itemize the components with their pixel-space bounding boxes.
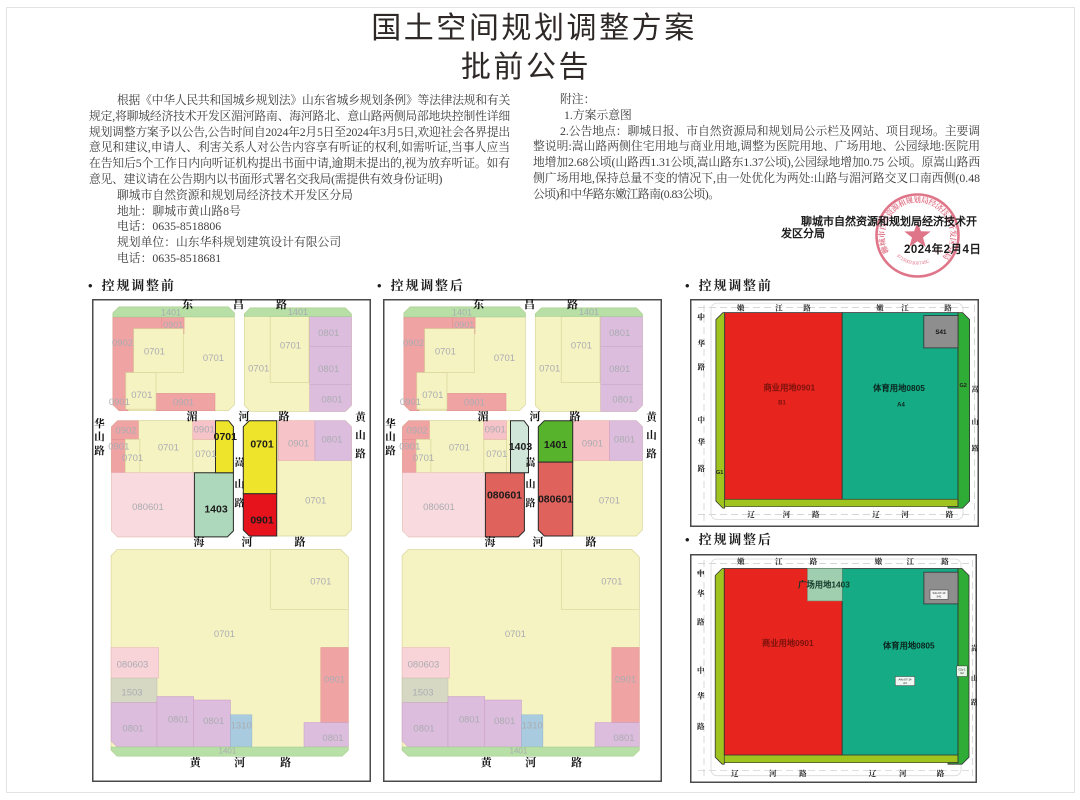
svg-text:0801: 0801 bbox=[614, 434, 635, 445]
svg-text:山: 山 bbox=[235, 478, 245, 491]
svg-text:路: 路 bbox=[972, 443, 979, 452]
svg-text:0701: 0701 bbox=[250, 438, 274, 450]
svg-text:山: 山 bbox=[355, 429, 366, 442]
svg-text:路: 路 bbox=[941, 556, 949, 566]
svg-text:0901: 0901 bbox=[615, 675, 636, 686]
svg-text:B1: B1 bbox=[778, 400, 786, 406]
svg-text:0801: 0801 bbox=[122, 724, 143, 735]
svg-text:中: 中 bbox=[697, 415, 705, 425]
svg-text:0901: 0901 bbox=[582, 438, 603, 449]
svg-text:嫩: 嫩 bbox=[875, 556, 883, 566]
svg-text:路: 路 bbox=[697, 463, 705, 473]
svg-text:海: 海 bbox=[485, 535, 496, 549]
svg-text:中: 中 bbox=[697, 568, 705, 578]
svg-text:080603: 080603 bbox=[408, 659, 440, 670]
svg-text:湄: 湄 bbox=[187, 410, 198, 423]
svg-text:路: 路 bbox=[526, 497, 536, 510]
svg-text:0701: 0701 bbox=[203, 353, 224, 364]
svg-text:山: 山 bbox=[94, 430, 105, 443]
svg-text:路: 路 bbox=[385, 444, 396, 457]
svg-text:辽: 辽 bbox=[747, 510, 755, 519]
svg-text:路: 路 bbox=[276, 299, 287, 311]
svg-text:0701: 0701 bbox=[305, 495, 326, 506]
svg-text:江: 江 bbox=[901, 303, 909, 313]
svg-text:0701: 0701 bbox=[599, 495, 620, 506]
svg-text:0701: 0701 bbox=[413, 453, 434, 464]
svg-text:河: 河 bbox=[783, 509, 791, 519]
svg-text:0701: 0701 bbox=[195, 449, 216, 460]
svg-text:0801: 0801 bbox=[321, 434, 342, 445]
svg-text:G2c-1: G2c-1 bbox=[958, 667, 966, 671]
svg-text:0701: 0701 bbox=[131, 390, 152, 401]
svg-text:华: 华 bbox=[697, 338, 705, 348]
svg-text:0701: 0701 bbox=[571, 341, 592, 352]
svg-text:嫩: 嫩 bbox=[876, 303, 884, 313]
svg-text:A4: A4 bbox=[903, 681, 907, 685]
svg-text:0701: 0701 bbox=[280, 341, 301, 352]
svg-text:0701: 0701 bbox=[494, 353, 515, 364]
svg-text:路: 路 bbox=[810, 556, 818, 566]
svg-text:江: 江 bbox=[775, 556, 783, 566]
svg-text:0902: 0902 bbox=[112, 338, 133, 349]
svg-text:0701: 0701 bbox=[435, 347, 456, 358]
svg-text:路: 路 bbox=[646, 447, 657, 460]
svg-text:河: 河 bbox=[901, 509, 909, 519]
svg-text:中: 中 bbox=[697, 665, 705, 675]
svg-text:0701: 0701 bbox=[248, 364, 269, 375]
svg-text:路: 路 bbox=[567, 299, 578, 311]
svg-text:海: 海 bbox=[194, 535, 205, 549]
svg-text:江: 江 bbox=[907, 556, 915, 566]
svg-text:1401: 1401 bbox=[452, 308, 472, 318]
svg-text:路: 路 bbox=[937, 768, 945, 778]
svg-text:中: 中 bbox=[697, 312, 705, 322]
svg-text:路: 路 bbox=[812, 509, 820, 519]
svg-text:路: 路 bbox=[697, 721, 705, 731]
svg-text:0901: 0901 bbox=[194, 424, 215, 435]
svg-text:080601: 080601 bbox=[423, 502, 455, 513]
svg-text:0701: 0701 bbox=[486, 449, 507, 460]
svg-text:华: 华 bbox=[697, 588, 705, 598]
svg-text:0801: 0801 bbox=[413, 724, 434, 735]
svg-text:体育用地0805: 体育用地0805 bbox=[873, 383, 925, 393]
svg-text:0901: 0901 bbox=[173, 397, 194, 408]
svg-text:华: 华 bbox=[385, 417, 396, 430]
svg-text:河: 河 bbox=[242, 536, 253, 549]
svg-text:河: 河 bbox=[525, 756, 536, 769]
svg-text:0701: 0701 bbox=[144, 347, 165, 358]
svg-text:0701: 0701 bbox=[505, 629, 526, 640]
svg-text:0701: 0701 bbox=[601, 577, 622, 588]
svg-text:辽: 辽 bbox=[869, 769, 877, 778]
svg-text:S41: S41 bbox=[937, 595, 942, 599]
svg-text:0801: 0801 bbox=[459, 714, 480, 725]
svg-text:G2: G2 bbox=[960, 671, 964, 675]
svg-text:华: 华 bbox=[697, 691, 705, 701]
svg-text:1401: 1401 bbox=[219, 747, 237, 756]
svg-text:0901: 0901 bbox=[454, 320, 474, 330]
svg-text:080601: 080601 bbox=[538, 494, 573, 506]
svg-text:嵩: 嵩 bbox=[235, 456, 245, 469]
svg-text:0901: 0901 bbox=[109, 397, 130, 408]
svg-text:路: 路 bbox=[279, 409, 290, 423]
svg-text:1403: 1403 bbox=[509, 441, 533, 453]
svg-text:嵩: 嵩 bbox=[971, 643, 977, 652]
svg-text:商业用地0901: 商业用地0901 bbox=[762, 638, 814, 648]
svg-text:0902: 0902 bbox=[403, 338, 424, 349]
svg-text:东: 东 bbox=[182, 299, 194, 311]
svg-text:0901: 0901 bbox=[399, 442, 420, 453]
svg-text:路: 路 bbox=[971, 698, 977, 707]
svg-text:080601: 080601 bbox=[132, 502, 164, 513]
svg-text:路: 路 bbox=[944, 303, 952, 313]
svg-text:山: 山 bbox=[526, 478, 536, 491]
svg-text:辽: 辽 bbox=[731, 769, 739, 778]
svg-text:黄: 黄 bbox=[646, 411, 658, 424]
svg-text:路: 路 bbox=[803, 303, 811, 313]
svg-text:1401: 1401 bbox=[544, 439, 568, 451]
svg-text:0701: 0701 bbox=[214, 431, 238, 443]
svg-text:0901: 0901 bbox=[400, 397, 421, 408]
svg-text:路: 路 bbox=[570, 409, 581, 423]
svg-text:东: 东 bbox=[473, 299, 485, 311]
svg-text:河: 河 bbox=[769, 768, 777, 778]
svg-text:0801: 0801 bbox=[322, 733, 343, 744]
svg-text:华: 华 bbox=[94, 417, 105, 430]
svg-text:0801: 0801 bbox=[203, 716, 224, 727]
svg-text:路: 路 bbox=[355, 447, 366, 460]
svg-text:路: 路 bbox=[697, 617, 705, 627]
svg-text:山: 山 bbox=[971, 674, 977, 683]
svg-text:山: 山 bbox=[385, 430, 396, 443]
svg-text:0701: 0701 bbox=[122, 453, 143, 464]
svg-text:路: 路 bbox=[946, 509, 954, 519]
svg-text:1403: 1403 bbox=[204, 503, 228, 515]
svg-text:1503: 1503 bbox=[121, 687, 142, 698]
svg-text:0901: 0901 bbox=[250, 515, 274, 527]
svg-text:嵩: 嵩 bbox=[972, 385, 979, 394]
svg-text:河: 河 bbox=[239, 410, 250, 423]
svg-text:G2: G2 bbox=[960, 383, 967, 389]
svg-text:路: 路 bbox=[586, 535, 597, 549]
svg-text:S41: S41 bbox=[935, 329, 947, 336]
svg-text:0801: 0801 bbox=[168, 714, 189, 725]
svg-text:0901: 0901 bbox=[485, 424, 506, 435]
svg-text:体育用地0805: 体育用地0805 bbox=[883, 640, 935, 650]
svg-text:0801: 0801 bbox=[494, 716, 515, 727]
svg-text:湄: 湄 bbox=[478, 410, 489, 423]
svg-text:昌: 昌 bbox=[233, 299, 244, 311]
svg-text:河: 河 bbox=[530, 410, 541, 423]
svg-text:嫩: 嫩 bbox=[737, 556, 745, 566]
svg-text:0701: 0701 bbox=[422, 390, 443, 401]
svg-text:0901: 0901 bbox=[163, 320, 183, 330]
svg-text:0801: 0801 bbox=[613, 733, 634, 744]
svg-text:河: 河 bbox=[234, 756, 245, 769]
svg-text:河: 河 bbox=[533, 536, 544, 549]
svg-text:河: 河 bbox=[899, 768, 907, 778]
svg-text:路: 路 bbox=[94, 444, 105, 457]
svg-text:嵩: 嵩 bbox=[526, 456, 536, 469]
svg-text:路: 路 bbox=[235, 497, 245, 510]
svg-text:0801: 0801 bbox=[609, 328, 630, 339]
svg-text:0801: 0801 bbox=[609, 364, 630, 375]
svg-text:0701: 0701 bbox=[214, 629, 235, 640]
svg-text:路: 路 bbox=[295, 535, 306, 549]
svg-text:1401: 1401 bbox=[510, 747, 528, 756]
svg-text:嫩: 嫩 bbox=[737, 303, 745, 313]
svg-text:0901: 0901 bbox=[108, 442, 129, 453]
svg-text:0701: 0701 bbox=[449, 443, 470, 454]
svg-text:华: 华 bbox=[697, 437, 705, 447]
svg-text:0801: 0801 bbox=[612, 394, 633, 405]
svg-text:0902: 0902 bbox=[115, 425, 136, 436]
svg-text:1503: 1503 bbox=[412, 687, 433, 698]
svg-text:0701: 0701 bbox=[158, 443, 179, 454]
svg-text:0801: 0801 bbox=[318, 364, 339, 375]
svg-text:江: 江 bbox=[775, 303, 783, 313]
svg-text:0701: 0701 bbox=[539, 364, 560, 375]
svg-text:080603: 080603 bbox=[117, 659, 149, 670]
svg-text:1401: 1401 bbox=[579, 307, 599, 317]
svg-text:广场用地1403: 广场用地1403 bbox=[798, 579, 850, 589]
svg-text:0902: 0902 bbox=[406, 425, 427, 436]
svg-text:0701: 0701 bbox=[310, 577, 331, 588]
svg-text:黄: 黄 bbox=[355, 411, 367, 424]
svg-text:0801: 0801 bbox=[321, 394, 342, 405]
svg-text:路: 路 bbox=[799, 768, 807, 778]
svg-text:1310: 1310 bbox=[231, 721, 252, 732]
svg-text:路: 路 bbox=[571, 755, 582, 769]
svg-text:0901: 0901 bbox=[288, 438, 309, 449]
svg-text:路: 路 bbox=[697, 362, 705, 372]
svg-text:0801: 0801 bbox=[318, 328, 339, 339]
svg-text:昌: 昌 bbox=[524, 299, 535, 311]
svg-text:1401: 1401 bbox=[161, 308, 181, 318]
svg-text:0901: 0901 bbox=[324, 675, 345, 686]
svg-text:G1: G1 bbox=[716, 470, 723, 476]
svg-text:山: 山 bbox=[972, 417, 979, 426]
svg-text:080601: 080601 bbox=[487, 490, 522, 502]
svg-text:路: 路 bbox=[280, 755, 291, 769]
svg-text:商业用地0901: 商业用地0901 bbox=[763, 383, 815, 393]
svg-text:辽: 辽 bbox=[872, 510, 880, 519]
svg-text:A4: A4 bbox=[897, 402, 905, 408]
svg-text:1310: 1310 bbox=[522, 721, 543, 732]
svg-text:山: 山 bbox=[646, 429, 657, 442]
svg-text:0901: 0901 bbox=[464, 397, 485, 408]
svg-text:1401: 1401 bbox=[288, 307, 308, 317]
